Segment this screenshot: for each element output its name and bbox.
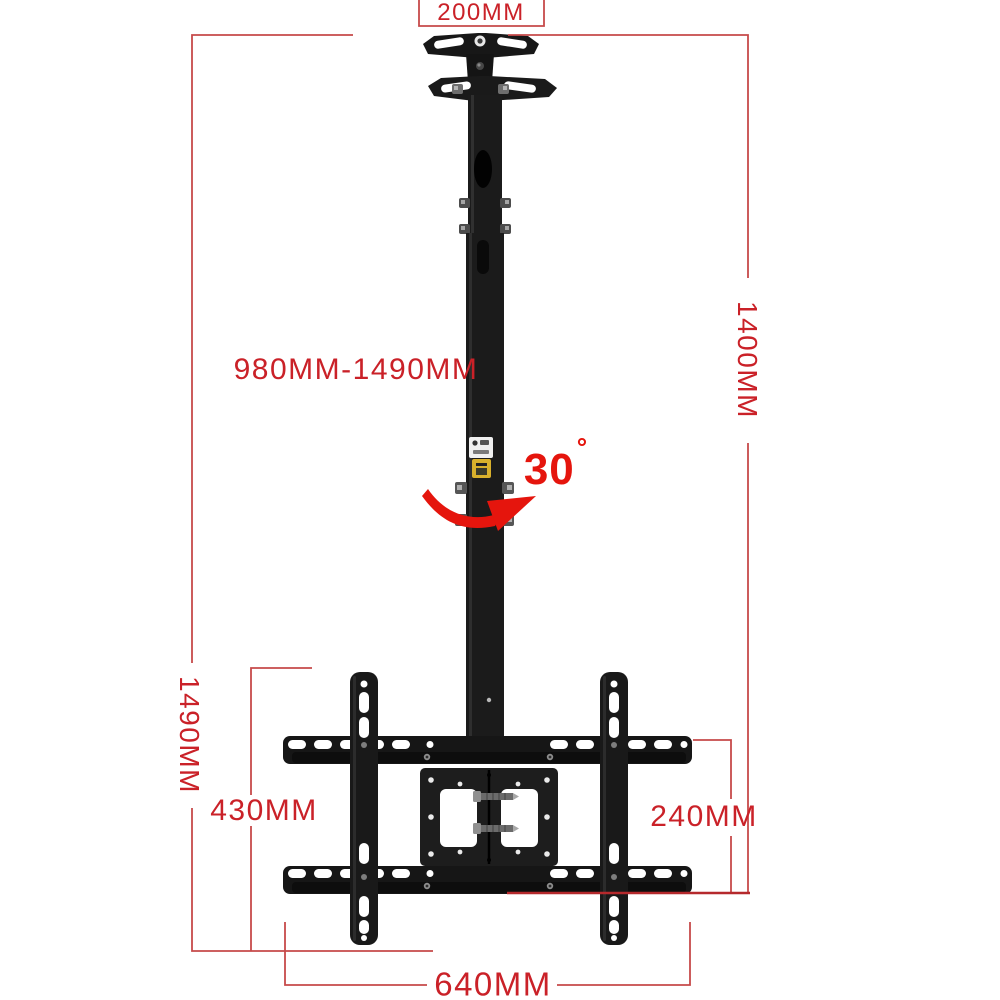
dim-430-line-upper <box>251 668 312 795</box>
cable-hole <box>474 150 492 188</box>
left-rail <box>350 672 378 945</box>
dim-label-drop-height: 1400MM <box>733 301 761 419</box>
dim-label-total-height: 1490MM <box>175 676 203 794</box>
mount-artwork <box>0 0 1000 1000</box>
dim-label-bracket-width: 640MM <box>434 968 552 1000</box>
dim-label-crossbar-spacing: 240MM <box>650 802 758 832</box>
right-rail <box>600 672 628 945</box>
dim-1490-line-upper <box>192 35 353 663</box>
degree-symbol: ° <box>577 432 588 462</box>
dim-label-adjustable-range: 980MM-1490MM <box>234 355 479 385</box>
vesa-plate <box>420 768 558 866</box>
telescoping-pole <box>455 95 514 740</box>
dim-1400-line-upper <box>508 35 748 278</box>
ceiling-mount <box>423 33 557 101</box>
vesa-cutout <box>440 789 477 847</box>
dim-label-bracket-height: 430MM <box>210 796 318 826</box>
dim-label-rotation-angle: 30° <box>524 434 588 492</box>
dim-240-line-upper <box>693 740 731 799</box>
dim-label-top-width: 200MM <box>437 1 525 25</box>
product-diagram: 200MM 1400MM 980MM-1490MM 30° 1490MM 430… <box>0 0 1000 1000</box>
pole-slot <box>477 240 489 274</box>
